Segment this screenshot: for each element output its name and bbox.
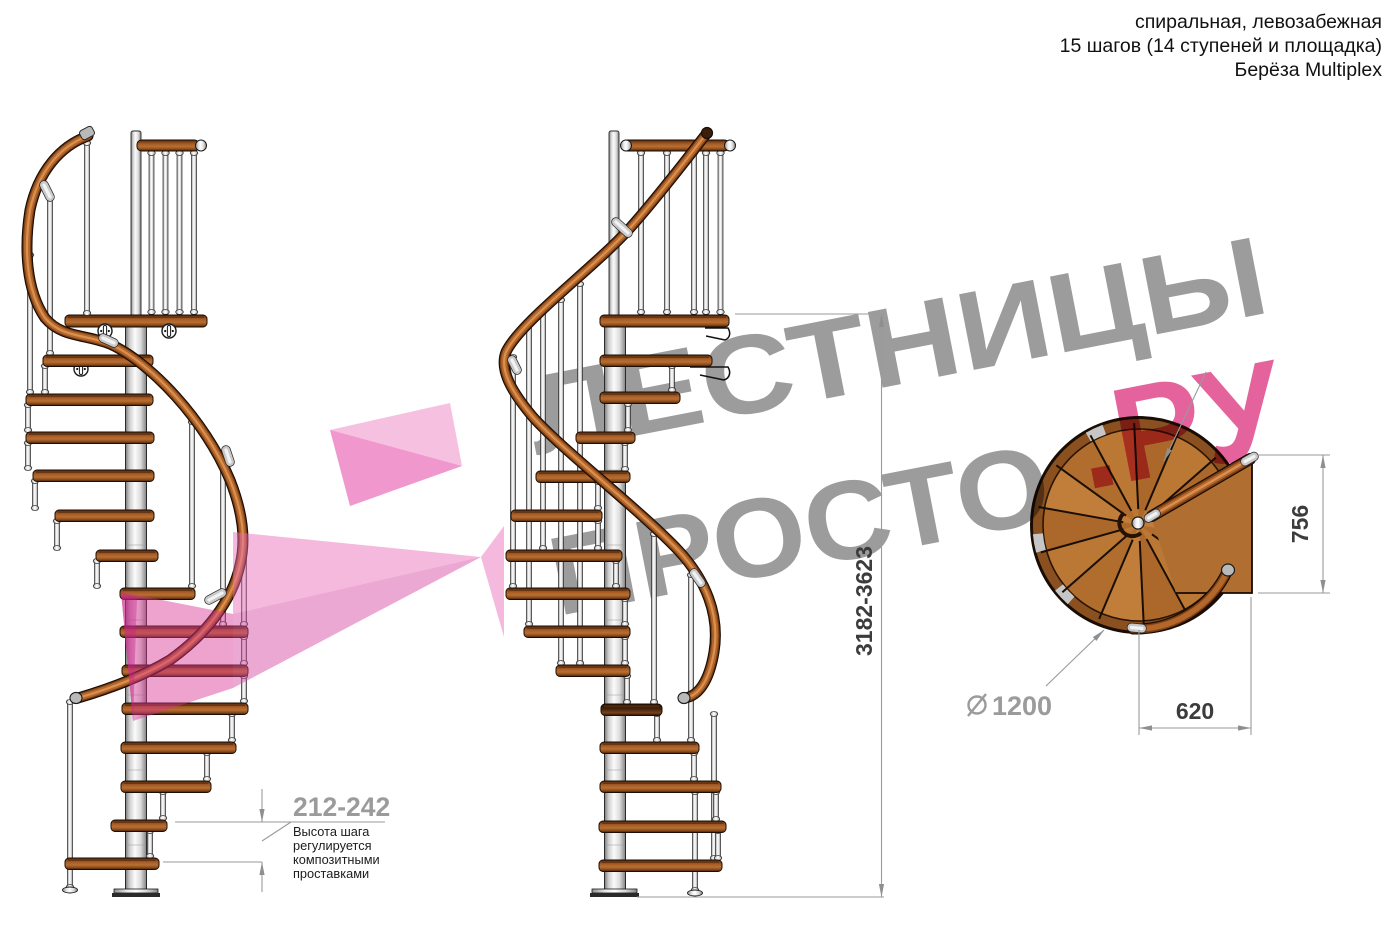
- svg-text:композитными: композитными: [293, 852, 380, 867]
- svg-text:проставками: проставками: [293, 866, 369, 881]
- svg-text:Берёза Multiplex: Берёза Multiplex: [1235, 59, 1383, 81]
- svg-text:1200: 1200: [992, 691, 1052, 721]
- svg-text:620: 620: [1176, 698, 1214, 724]
- svg-text:Высота шага: Высота шага: [293, 824, 370, 839]
- svg-text:15 шагов (14 ступеней и площад: 15 шагов (14 ступеней и площадка): [1060, 35, 1382, 57]
- svg-text:регулируется: регулируется: [293, 838, 372, 853]
- svg-text:спиральная, левозабежная: спиральная, левозабежная: [1135, 11, 1382, 33]
- svg-text:212-242: 212-242: [293, 792, 390, 822]
- svg-text:756: 756: [1287, 505, 1313, 543]
- svg-text:3182-3623: 3182-3623: [851, 546, 877, 656]
